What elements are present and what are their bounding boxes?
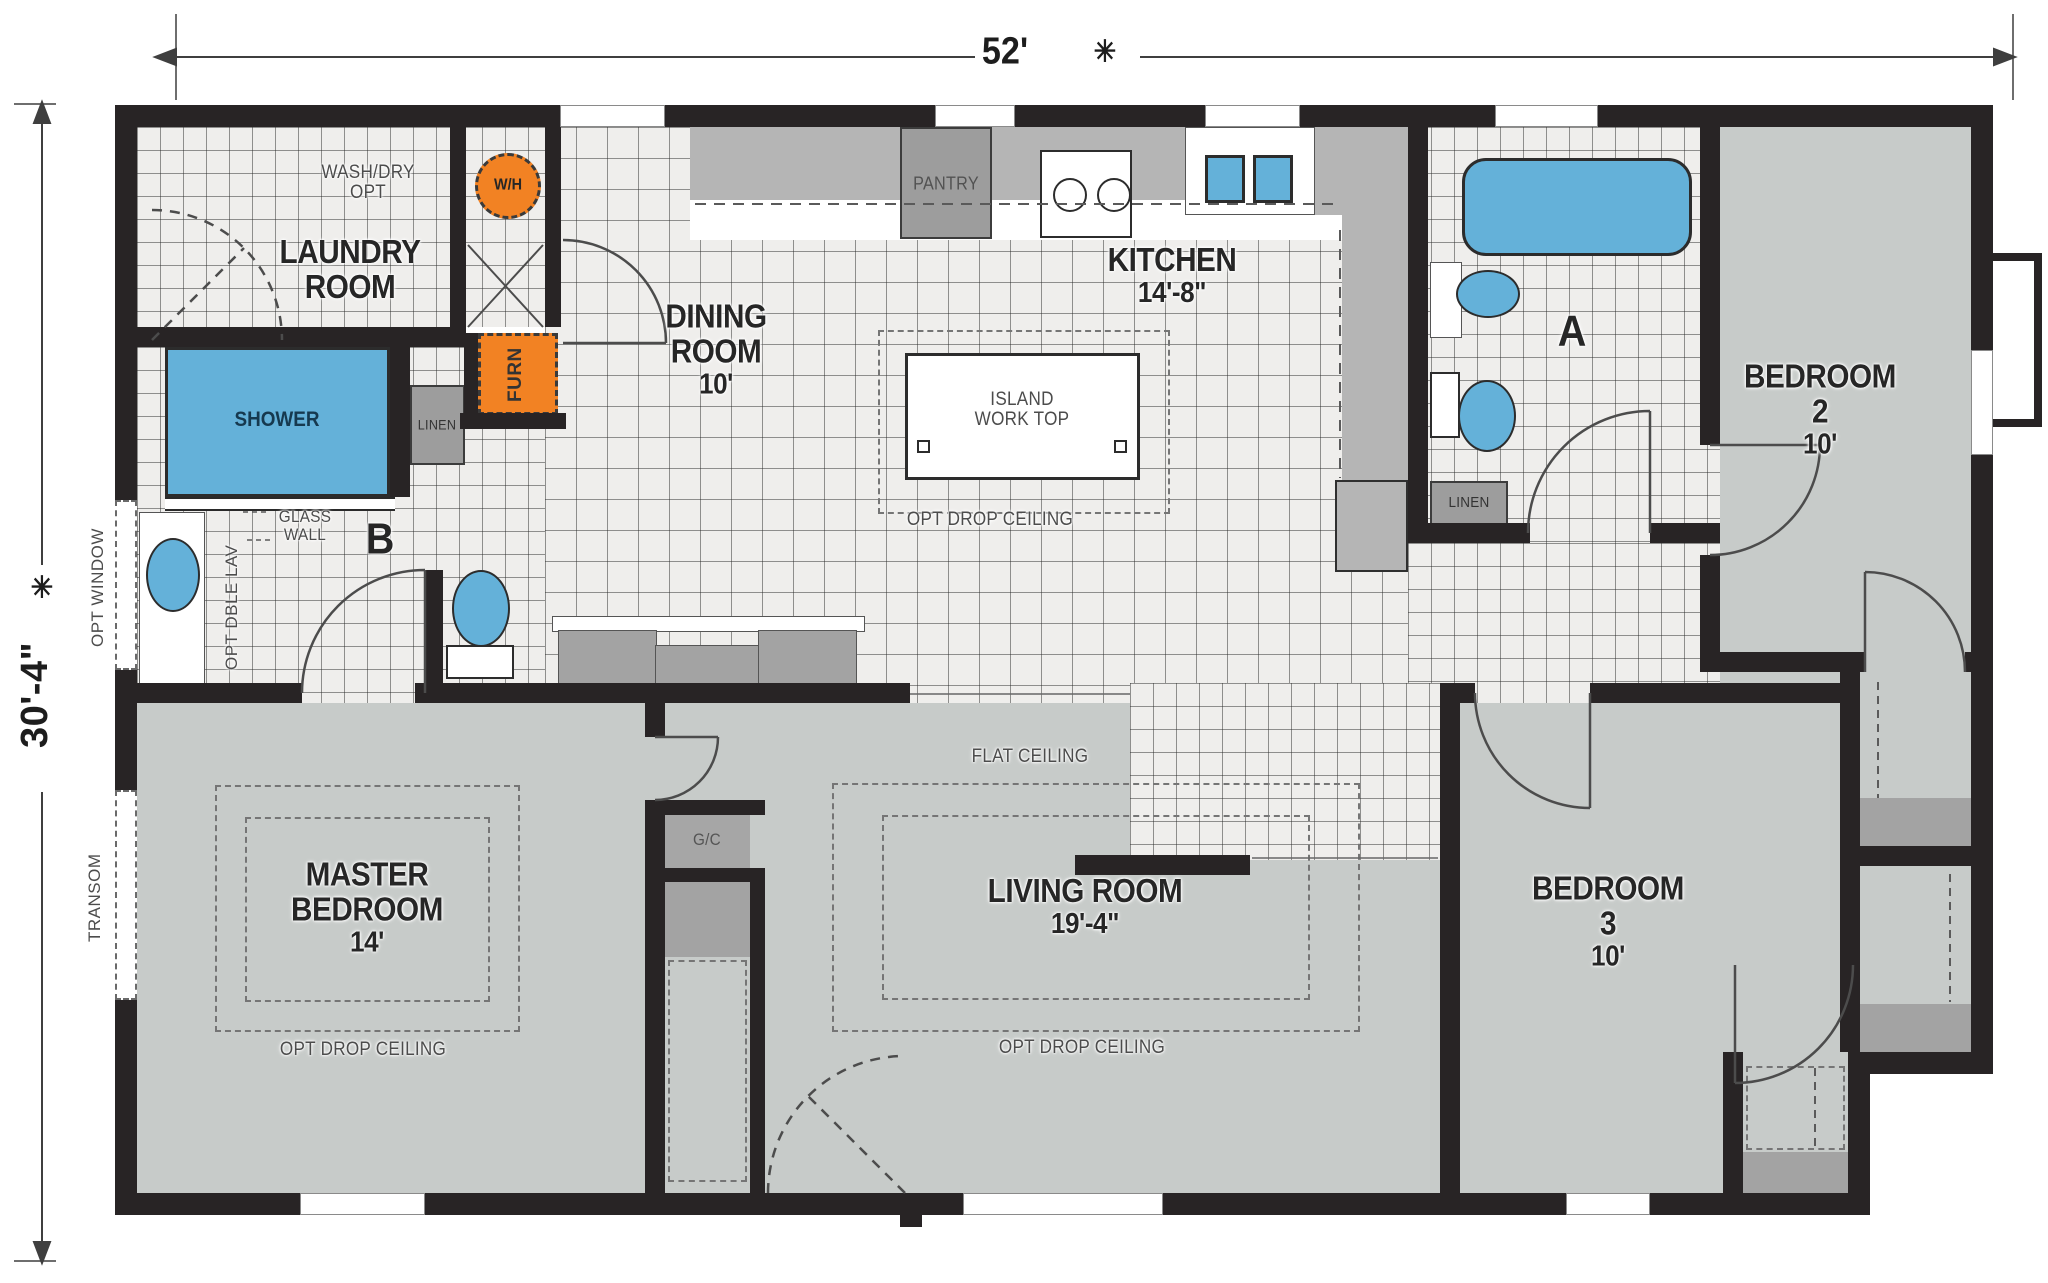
wall-batha-bottom-right — [1650, 523, 1720, 543]
wall-bed2-left-lower — [1700, 555, 1720, 672]
bed2-closet-shelf — [1860, 798, 1971, 846]
lower-floor-band2 — [137, 1052, 1848, 1193]
window-top-bath-a — [1495, 105, 1598, 127]
pantry-label: PANTRY — [913, 174, 979, 193]
bumpout-right — [2034, 253, 2042, 427]
hall-floor-1 — [1408, 543, 1720, 703]
gc-wardrobe-outline — [668, 960, 747, 1182]
transom-window-master — [115, 790, 137, 1000]
kitchen-label: KITCHEN14'-8" — [1108, 243, 1237, 309]
wall-batha-bottom-left — [1408, 523, 1530, 543]
bath-a-label: A — [1558, 309, 1587, 356]
kitchen-appliance — [1335, 480, 1408, 572]
wall-bed2-bottom-stub — [1965, 652, 1971, 672]
wall-master-lower — [645, 800, 665, 1193]
width-dimension-star: ✳ — [1094, 35, 1117, 70]
bedroom2-label: BEDROOM210' — [1744, 360, 1896, 461]
gc-wardrobe-shelf — [665, 882, 750, 957]
kitchen-sink-right — [1253, 155, 1293, 203]
wall-bed2-left-upper — [1700, 127, 1720, 445]
range-burner-left — [1053, 178, 1087, 212]
furnace-label: FURN — [505, 338, 527, 412]
laundry-room-label: LAUNDRYROOM — [280, 235, 421, 305]
wall-laundry-bathb — [137, 327, 466, 347]
bath-a-toilet-tank — [1430, 372, 1460, 438]
transom-label: TRANSOM — [85, 800, 105, 995]
window-bottom-bed3 — [1566, 1193, 1650, 1215]
bath-a-toilet-bowl — [1458, 380, 1516, 452]
wall-gc-bottom — [645, 868, 765, 882]
flat-ceiling-label: FLAT CEILING — [972, 747, 1089, 767]
living-room-label: LIVING ROOM19'-4" — [988, 874, 1183, 940]
bath-b-toilet-tank — [446, 645, 514, 679]
wall-bathb-toilet-partition — [425, 570, 443, 703]
glass-wall-label: GLASSWALL — [279, 508, 331, 544]
wall-bed3-left — [1440, 683, 1460, 1193]
island-work-top-label: ISLANDWORK TOP — [975, 390, 1070, 430]
gc-closet-label: G/C — [693, 831, 721, 849]
bumpout-bottom — [1993, 419, 2042, 427]
wall-exterior-top — [115, 105, 1993, 127]
wall-gc-top — [645, 800, 765, 815]
bath-b-lav-basin — [146, 538, 200, 612]
shower-label: SHOWER — [234, 409, 319, 431]
wall-whcloset-right — [545, 127, 561, 327]
bath-b-toilet-bowl — [452, 570, 510, 647]
floor-plan: 52' ✳ 30'-4" ✳ LAUNDRYROOM DININGROOM10'… — [0, 0, 2048, 1283]
wall-notch-vertical — [1848, 1074, 1870, 1215]
wall-bed3-closet — [1723, 1052, 1743, 1193]
bath-b-label: B — [366, 517, 395, 564]
wall-bathb-bottom-left — [137, 683, 302, 703]
kitchen-side-counter — [1342, 215, 1408, 480]
linen-b-label: LINEN — [418, 418, 456, 433]
dining-room-label: DININGROOM10' — [665, 300, 766, 401]
opt-window-bath-b — [115, 500, 137, 670]
wall-closetcol-left — [1840, 672, 1860, 1052]
kitchen-sink-left — [1205, 155, 1245, 203]
wall-bed3-top-stub — [1460, 683, 1475, 703]
wall-master-stub — [645, 683, 665, 737]
bed3-corner-closet-shelf — [1743, 1152, 1848, 1193]
wash-dry-opt-label: WASH/DRYOPT — [321, 163, 414, 203]
wall-closetcol-divider — [1860, 846, 1971, 866]
wall-notch-horizontal — [1848, 1052, 1993, 1074]
master-drop-ceiling-label: OPT DROP CEILING — [280, 1040, 446, 1060]
island-support-right — [1114, 440, 1127, 453]
wall-shower-right — [390, 347, 410, 497]
wall-batha-left — [1408, 127, 1428, 543]
wall-bed3-top — [1590, 683, 1860, 703]
kitchen-corner-counter — [1315, 127, 1408, 215]
bed3-right-closet-shelf — [1860, 1004, 1971, 1052]
window-right-bed2 — [1971, 350, 1993, 455]
wall-furn-bottom — [460, 413, 566, 429]
sofa-cushion-right — [758, 630, 857, 685]
living-drop-ceiling-label: OPT DROP CEILING — [999, 1038, 1165, 1058]
height-dimension: 30'-4" — [14, 620, 57, 770]
bedroom3-label: BEDROOM310' — [1532, 872, 1684, 973]
entry-door-jamb — [900, 1193, 922, 1227]
window-bottom-living — [963, 1193, 1163, 1215]
sofa-cushion-mid — [655, 645, 760, 685]
island-support-left — [917, 440, 930, 453]
bath-a-lav-basin — [1456, 270, 1520, 318]
water-heater-label: W/H — [494, 178, 522, 195]
range-burner-right — [1097, 178, 1131, 212]
width-dimension: 52' — [982, 31, 1028, 74]
opt-dble-lav-label: OPT DBLE LAV — [222, 515, 242, 700]
wall-bed2-bottom — [1720, 652, 1865, 672]
wall-exterior-right — [1971, 105, 1993, 1074]
sofa-cushion-left — [558, 630, 657, 685]
window-top-kitchen-sink — [1205, 105, 1300, 127]
wall-gc-right — [750, 868, 765, 1193]
master-bedroom-label: MASTERBEDROOM14' — [291, 858, 443, 959]
height-dimension-star: ✳ — [31, 571, 54, 606]
bedroom3-closet-outline — [1746, 1066, 1845, 1150]
linen-a-label: LINEN — [1448, 495, 1489, 511]
wall-whcloset-left — [450, 127, 466, 327]
window-top-kitchen-left — [935, 105, 1015, 127]
opt-window-label: OPT WINDOW — [88, 505, 108, 670]
kitchen-drop-ceiling-label: OPT DROP CEILING — [907, 510, 1073, 530]
window-top-dining — [560, 105, 665, 127]
bathtub — [1462, 158, 1692, 256]
window-bottom-master — [300, 1193, 425, 1215]
